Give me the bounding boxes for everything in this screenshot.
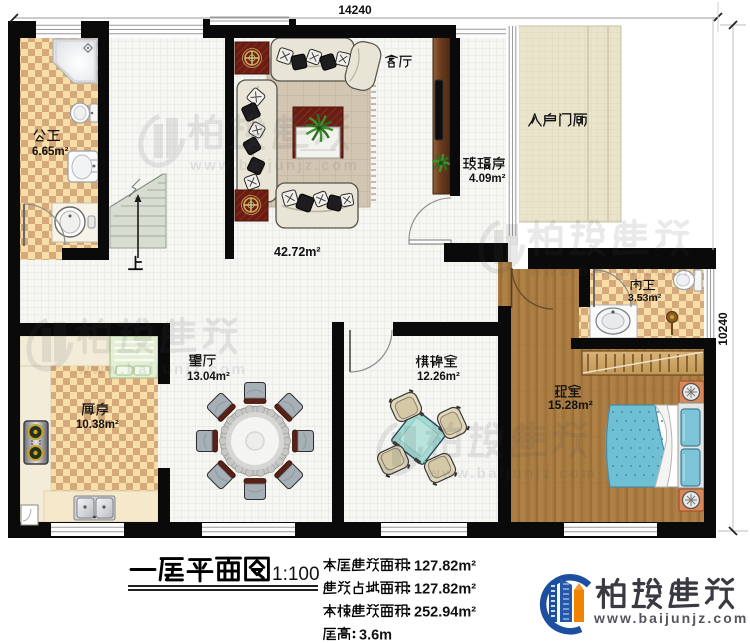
svg-text:14240: 14240 [338,3,372,17]
svg-text:15.28m²: 15.28m² [548,398,593,412]
svg-text:www.baijunjz.com: www.baijunjz.com [427,465,597,482]
svg-text:12.26m²: 12.26m² [417,371,460,383]
svg-text:127.82m²: 127.82m² [414,582,476,598]
svg-text:127.82m²: 127.82m² [414,559,476,575]
svg-text:10240: 10240 [716,312,730,346]
svg-text:www.baijunjz.com: www.baijunjz.com [77,361,247,378]
svg-text:3.6m: 3.6m [359,628,392,643]
svg-text:www.baijunjz.com: www.baijunjz.com [189,157,359,174]
svg-text:1:100: 1:100 [272,564,320,585]
svg-text:4.09m²: 4.09m² [469,173,506,185]
svg-text:6.65m²: 6.65m² [32,146,69,158]
svg-text:3.53m²: 3.53m² [628,292,662,304]
svg-text:252.94m²: 252.94m² [414,605,476,621]
svg-text:10.38m²: 10.38m² [76,419,119,431]
svg-text:www.baijunjz.com: www.baijunjz.com [593,610,748,626]
svg-text:42.72m²: 42.72m² [274,245,321,259]
svg-text:www.baijunjz.com: www.baijunjz.com [529,263,699,280]
